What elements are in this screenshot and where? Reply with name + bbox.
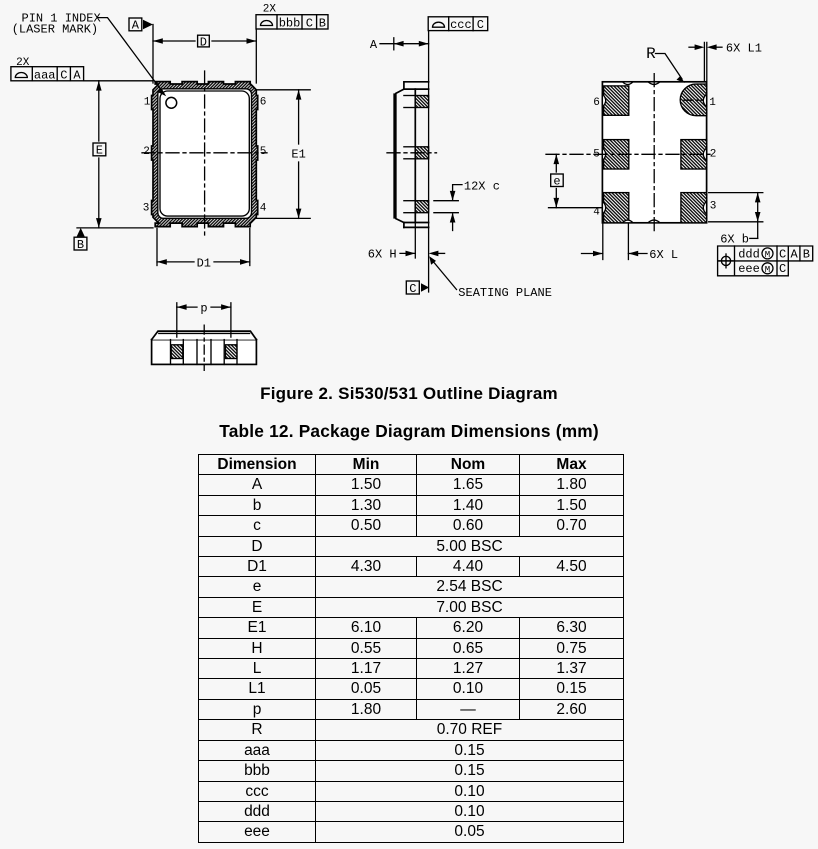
svg-text:2X: 2X xyxy=(263,3,277,15)
svg-text:12X c: 12X c xyxy=(464,179,500,193)
svg-text:D: D xyxy=(200,36,207,50)
svg-text:C: C xyxy=(306,16,313,30)
svg-text:e: e xyxy=(553,175,560,189)
svg-text:A: A xyxy=(370,38,378,52)
svg-text:(LASER MARK): (LASER MARK) xyxy=(12,23,98,37)
svg-text:6X H: 6X H xyxy=(368,247,397,261)
svg-text:eee: eee xyxy=(738,262,760,276)
svg-text:SEATING PLANE: SEATING PLANE xyxy=(458,286,552,300)
svg-text:M: M xyxy=(765,265,770,275)
svg-text:D1: D1 xyxy=(197,256,211,270)
svg-text:6X L1: 6X L1 xyxy=(726,42,762,56)
svg-text:A: A xyxy=(132,19,140,33)
svg-text:C: C xyxy=(779,262,786,276)
svg-text:A: A xyxy=(790,247,798,261)
svg-text:1: 1 xyxy=(144,97,151,109)
svg-text:p: p xyxy=(200,301,207,315)
svg-text:6: 6 xyxy=(593,97,600,109)
svg-text:6X b: 6X b xyxy=(720,232,749,246)
svg-text:1: 1 xyxy=(709,97,716,109)
svg-text:4: 4 xyxy=(260,203,267,215)
svg-text:B: B xyxy=(803,247,810,261)
svg-text:M: M xyxy=(765,250,770,260)
svg-text:bbb: bbb xyxy=(279,16,301,30)
svg-text:3: 3 xyxy=(143,203,150,215)
svg-text:2: 2 xyxy=(143,146,150,158)
svg-text:B: B xyxy=(319,16,326,30)
svg-text:A: A xyxy=(73,68,81,82)
svg-text:C: C xyxy=(779,247,786,261)
svg-text:5: 5 xyxy=(593,149,600,161)
svg-text:B: B xyxy=(77,238,84,252)
svg-text:6X L: 6X L xyxy=(649,248,678,262)
svg-text:C: C xyxy=(477,18,484,32)
svg-text:5: 5 xyxy=(260,146,267,158)
svg-text:C: C xyxy=(60,68,67,82)
svg-text:6: 6 xyxy=(260,97,267,109)
svg-text:2: 2 xyxy=(710,149,717,161)
svg-text:3: 3 xyxy=(710,201,717,213)
svg-text:E: E xyxy=(96,144,103,158)
svg-text:R: R xyxy=(646,45,656,63)
svg-text:C: C xyxy=(409,282,416,296)
svg-text:ddd: ddd xyxy=(738,247,760,261)
svg-text:E1: E1 xyxy=(291,147,305,161)
svg-text:ccc: ccc xyxy=(450,18,472,32)
svg-text:aaa: aaa xyxy=(34,68,56,82)
